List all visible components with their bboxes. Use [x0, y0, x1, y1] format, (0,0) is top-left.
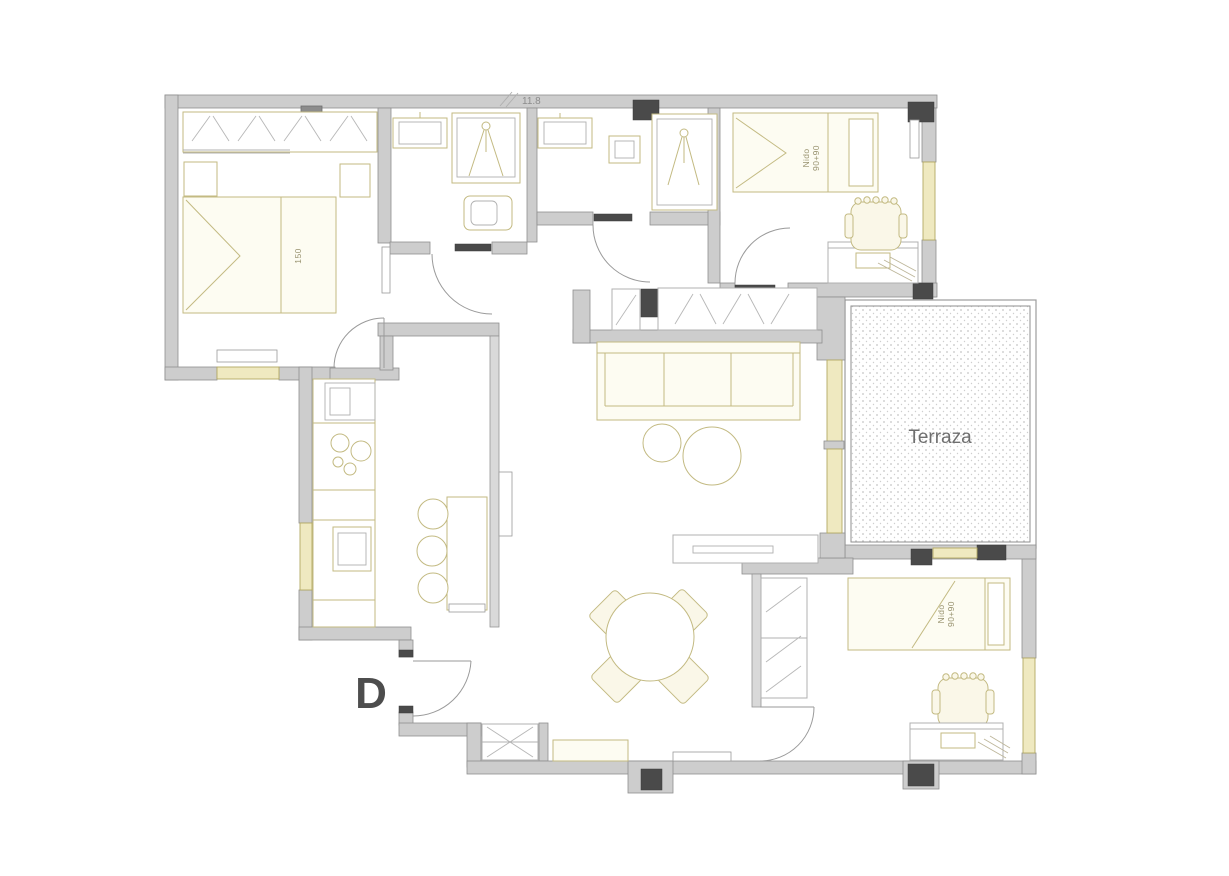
desk-keyboard	[941, 733, 975, 748]
kitchen-island	[447, 497, 487, 610]
chair-armrest	[932, 690, 940, 714]
wall-segment	[752, 574, 761, 707]
master-bed-label-group: 150	[293, 248, 303, 263]
wall-segment	[1022, 548, 1036, 658]
door-lintel	[399, 706, 413, 713]
sink	[393, 118, 447, 148]
column	[641, 289, 658, 317]
pillow	[849, 119, 873, 186]
wall-segment	[378, 108, 391, 243]
bed-label-line1: Nido	[801, 148, 811, 167]
terrace-door-glass	[827, 449, 842, 533]
toilet-cistern	[609, 136, 640, 163]
double-bed	[183, 197, 336, 313]
wall-segment	[1022, 753, 1036, 774]
bed-label-line2: 90+90	[946, 601, 956, 627]
door-lintel	[399, 650, 413, 657]
dimension-note: 11.8	[522, 96, 541, 107]
desk-chair	[851, 202, 901, 250]
window	[923, 162, 935, 240]
terrace-door-divider	[824, 441, 844, 449]
wall-segment	[467, 761, 1036, 774]
column	[913, 283, 933, 299]
closet	[658, 288, 817, 330]
pillow	[988, 583, 1004, 645]
wall-segment	[165, 95, 178, 380]
window	[217, 367, 279, 379]
wall-segment	[299, 367, 312, 523]
chair-armrest	[899, 214, 907, 238]
room-kitchen	[313, 379, 487, 627]
room-bedroom-bottom: Nido 90+90	[760, 578, 1010, 761]
desk-chair	[938, 678, 988, 727]
room-master-bedroom: 150	[183, 112, 384, 368]
window	[1023, 658, 1035, 753]
radiator	[499, 472, 512, 536]
terrace-floor	[851, 306, 1030, 542]
door-arc	[334, 318, 384, 368]
sofa	[597, 342, 800, 420]
wall-segment	[165, 367, 217, 380]
stools	[417, 499, 448, 603]
nightstand	[184, 162, 217, 196]
coffee-table-large	[683, 427, 741, 485]
wall-segment	[390, 242, 430, 254]
column	[641, 769, 662, 790]
wall-segment	[378, 323, 499, 336]
terrace-door-glass	[827, 360, 842, 444]
terrace-label: Terraza	[908, 427, 972, 448]
window	[933, 548, 977, 558]
door-arc	[735, 228, 790, 283]
wall-segment	[490, 336, 499, 627]
column	[911, 549, 932, 565]
room-bedroom-top: Nido 90+90	[733, 113, 918, 292]
bed-label-group: Nido 90+90	[936, 601, 956, 627]
bed-label-group: Nido 90+90	[801, 145, 821, 171]
wall-segment	[299, 627, 411, 640]
wall-segment	[820, 533, 845, 558]
nightstand	[340, 164, 370, 197]
chair-armrest	[845, 214, 853, 238]
tv-unit	[673, 535, 818, 563]
sideboard	[553, 740, 628, 761]
wall-segment	[539, 723, 548, 761]
wall-segment	[165, 95, 937, 108]
door-arc	[432, 254, 492, 314]
radiator	[217, 350, 277, 362]
column	[977, 545, 1006, 560]
column	[908, 764, 934, 786]
door-panel	[455, 244, 491, 251]
dining-table	[606, 593, 694, 681]
kitchen-counter	[313, 379, 375, 627]
coffee-table-small	[643, 424, 681, 462]
wall-segment	[492, 242, 527, 254]
entrance: D	[355, 650, 471, 718]
wall-segment	[380, 336, 393, 370]
wall-segment	[573, 330, 822, 343]
door-arc	[760, 707, 814, 761]
room-bathroom-2	[538, 113, 717, 282]
kitchen-sink	[333, 527, 371, 571]
wardrobe	[183, 112, 377, 152]
wall-segment	[537, 212, 593, 225]
wall-segment	[573, 290, 590, 343]
chair-tufting	[943, 673, 984, 680]
island-grill	[449, 604, 485, 612]
chair-armrest	[986, 690, 994, 714]
window	[300, 523, 312, 590]
terrace: Terraza	[845, 300, 1036, 548]
column	[908, 102, 934, 122]
room-bathroom-1	[393, 112, 520, 314]
radiator	[382, 247, 390, 293]
floor-plan-canvas: Terraza	[0, 0, 1229, 876]
plan-letter: D	[355, 669, 387, 718]
master-bed-label: 150	[293, 248, 303, 263]
door-panel	[594, 214, 632, 221]
entry-closet	[482, 724, 538, 760]
single-bed	[848, 578, 1010, 650]
wall-segment	[817, 297, 845, 360]
radiator	[673, 752, 731, 761]
wall-segment	[527, 108, 537, 242]
radiator	[910, 120, 919, 158]
bed-label-line2: 90+90	[811, 145, 821, 171]
door-arc	[413, 661, 471, 716]
bed-label-line1: Nido	[936, 604, 946, 623]
wall-segment	[467, 723, 481, 767]
floor-plan: Terraza	[0, 0, 1229, 876]
sink	[538, 118, 592, 148]
door-arc	[593, 225, 650, 282]
